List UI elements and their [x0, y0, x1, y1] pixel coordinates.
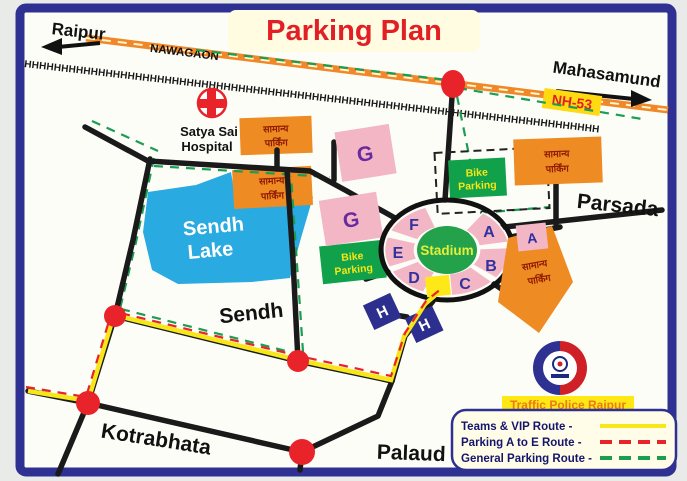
section-label-c: C — [459, 276, 471, 293]
junction-dot — [441, 70, 465, 98]
section-label-a: A — [483, 224, 495, 241]
bike-parking-box-top: Bike Parking — [448, 158, 507, 199]
lake-label-line2: Lake — [187, 238, 234, 264]
legend-item-vip: Teams & VIP Route - — [461, 421, 573, 433]
palaud-label: Palaud — [376, 441, 446, 466]
section-label-e: E — [393, 245, 404, 262]
stadium-label: Stadium — [420, 243, 473, 258]
legend-item-general: General Parking Route - — [461, 453, 592, 465]
section-label-b: B — [485, 258, 497, 275]
zone-g-2: G — [319, 192, 383, 247]
hospital-label-line1: Satya Sai — [180, 124, 238, 139]
bike-parking-box-left: Bike Parking — [319, 240, 387, 284]
general-parking-text: सामान्य — [543, 149, 570, 161]
legend: Teams & VIP Route - Parking A to E Route… — [452, 410, 676, 470]
zone-a-label: A — [526, 230, 538, 247]
general-parking-text: पार्किंग — [260, 189, 285, 202]
junction-dot — [287, 350, 309, 372]
section-label-f: F — [409, 217, 419, 234]
junction-dot — [289, 439, 315, 465]
section-label-d: D — [408, 270, 420, 287]
traffic-police-logo — [533, 341, 587, 395]
parking-plan-map: Parking Plan HHHHHHHHHHHHHHHHHHHHHHHHHHH… — [0, 0, 687, 481]
bike-parking-text: Parking — [458, 179, 497, 193]
bike-parking-text: Bike — [341, 250, 364, 264]
legend-item-parking-ae: Parking A to E Route - — [461, 437, 582, 449]
general-parking-box-3: सामान्य पार्किंग — [513, 136, 603, 185]
zone-a-east: A — [516, 223, 549, 252]
bike-parking-text: Bike — [465, 166, 488, 179]
junction-dot — [76, 391, 100, 415]
hospital-cross-icon — [207, 90, 216, 117]
hospital-label-line2: Hospital — [181, 139, 232, 154]
zone-g-1: G — [334, 124, 396, 182]
page-title: Parking Plan — [266, 15, 442, 47]
general-parking-text: सामान्य — [262, 124, 289, 136]
general-parking-text: सामान्य — [258, 175, 285, 187]
general-parking-text: पार्किंग — [545, 163, 570, 176]
junction-dot — [104, 305, 126, 327]
